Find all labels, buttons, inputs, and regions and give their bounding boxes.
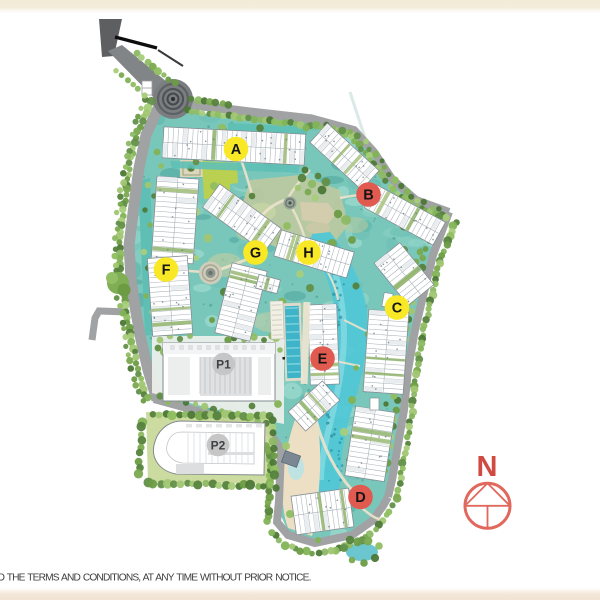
svg-text:N: N [477, 451, 498, 483]
svg-text:H: H [303, 246, 313, 262]
svg-text:G: G [250, 246, 261, 262]
svg-text:F: F [162, 263, 171, 279]
svg-text:C: C [392, 301, 403, 317]
svg-text:P2: P2 [211, 438, 226, 452]
svg-text:A: A [231, 142, 242, 158]
svg-text:O THE TERMS AND CONDITIONS, AT: O THE TERMS AND CONDITIONS, AT ANY TIME … [0, 573, 311, 584]
svg-text:D: D [355, 490, 365, 506]
svg-text:E: E [318, 352, 328, 368]
svg-text:B: B [363, 188, 373, 204]
svg-text:P1: P1 [216, 357, 231, 371]
